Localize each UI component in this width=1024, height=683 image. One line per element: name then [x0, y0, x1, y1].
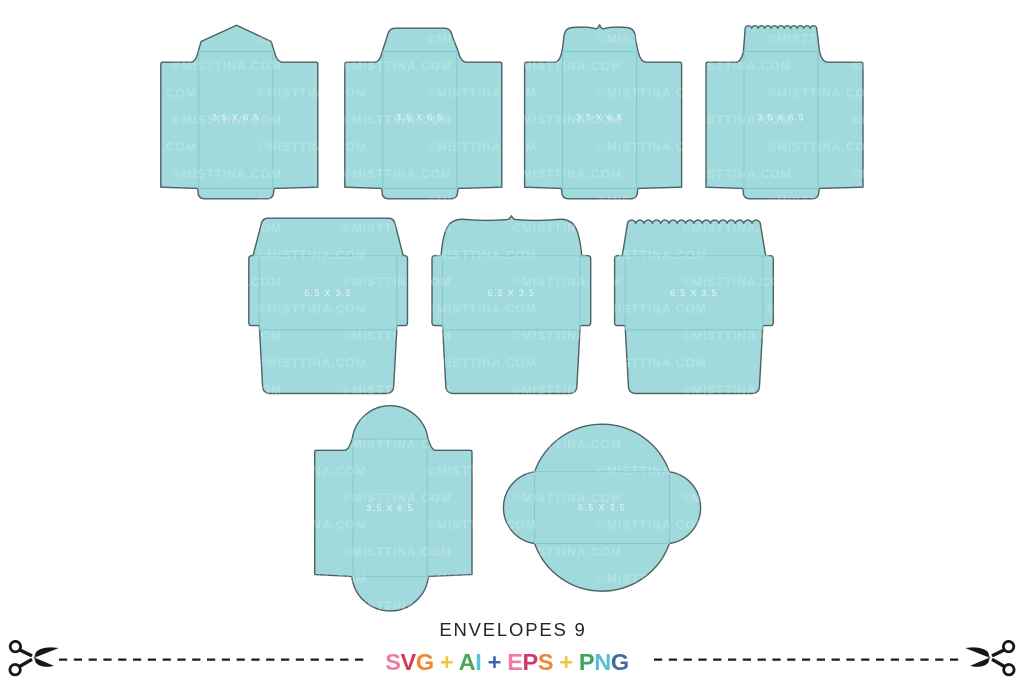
svg-text:6.5 X 3.5: 6.5 X 3.5 [670, 288, 718, 298]
svg-text:3.5 X 6.5: 3.5 X 6.5 [576, 113, 624, 123]
svg-text:ENVELOPES 9: ENVELOPES 9 [439, 619, 586, 640]
svg-text:3.5 X 6.5: 3.5 X 6.5 [212, 113, 260, 123]
svg-text:6.5 X 3.5: 6.5 X 3.5 [488, 288, 536, 298]
svg-text:3.5 X 6.5: 3.5 X 6.5 [757, 113, 805, 123]
svg-text:3.5 X 6.5: 3.5 X 6.5 [396, 113, 444, 123]
svg-text:SVG + AI + EPS + PNG: SVG + AI + EPS + PNG [385, 649, 629, 675]
svg-text:6.5 X 3.5: 6.5 X 3.5 [304, 288, 352, 298]
svg-text:6.5 X 3.5: 6.5 X 3.5 [578, 503, 626, 513]
svg-text:3.5 X 6.5: 3.5 X 6.5 [366, 503, 414, 513]
